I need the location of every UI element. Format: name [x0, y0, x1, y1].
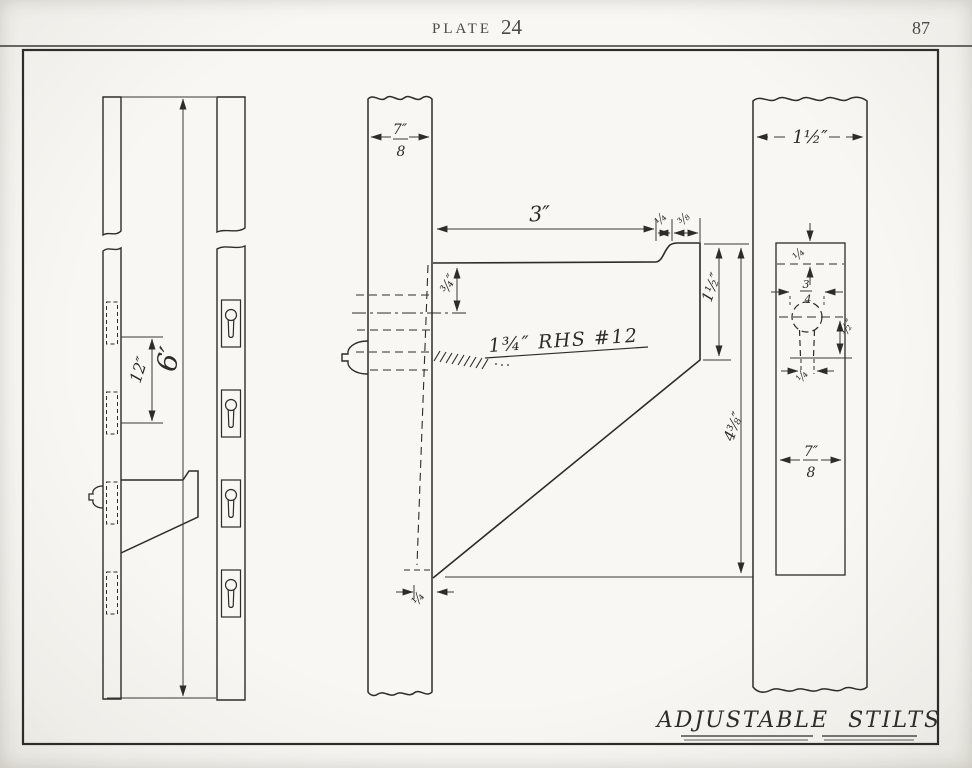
- round-head-screw: [342, 341, 368, 374]
- page-number: 87: [912, 18, 930, 38]
- title-block: ADJUSTABLE STILTS: [655, 708, 941, 740]
- plate-drawing: PLATE 24 87 12″ 6′: [0, 0, 972, 768]
- dim-label-bracket-height: 4⅜″: [720, 409, 748, 444]
- hatch-leader: [434, 351, 488, 369]
- drawing-frame: [23, 50, 938, 744]
- pole-side-lower: [103, 248, 121, 699]
- plate-number-label: 24: [501, 15, 523, 39]
- keyhole-slot-plate: [222, 570, 241, 617]
- dim-label-plate-width-den: 8: [807, 465, 816, 481]
- dim-label-lip-rise: ¼: [652, 210, 670, 228]
- hidden-slot-edge: [814, 330, 815, 357]
- step-bracket-profile: [433, 243, 700, 578]
- screw-head-small: [89, 486, 103, 508]
- pole-front-upper: [217, 97, 245, 232]
- bracket-side-detail: 7″ 8 3″ ¼ ⅜ ¾″: [342, 96, 753, 695]
- leader-dot: [495, 363, 497, 365]
- dim-label-hole-diameter-den: 4: [804, 293, 812, 306]
- hidden-slot-mark: [107, 572, 118, 614]
- overall-front-view: [217, 97, 245, 700]
- scanned-plate-page: PLATE 24 87 12″ 6′: [0, 0, 972, 768]
- hidden-slot-mark: [107, 302, 118, 344]
- dim-label-slot-spacing: 12″: [126, 354, 152, 385]
- keyhole-slot-plate: [222, 390, 241, 437]
- leader-dot: [501, 364, 503, 366]
- plate-word-label: PLATE: [432, 21, 492, 37]
- pole-side-upper: [103, 97, 121, 235]
- overall-side-view: 12″ 6′: [89, 97, 216, 699]
- keyhole-slot-plate: [222, 300, 241, 347]
- dim-label-slot-width: ¼: [793, 367, 811, 385]
- dim-label-hole-diameter-num: 3: [803, 278, 810, 291]
- dim-label-pole-length: 6′: [150, 343, 187, 374]
- hidden-slot-edge: [800, 330, 801, 357]
- keyhole-slot-plate: [222, 480, 241, 527]
- hidden-line-tongue: [417, 265, 428, 565]
- leader-dot: [507, 364, 509, 366]
- plate-title: ADJUSTABLE STILTS: [655, 708, 941, 733]
- pole-detail-front: [753, 97, 867, 692]
- pole-front-detail: 1½″ ¼ 3 4 ½″ ¼ 7″ 8: [753, 97, 867, 692]
- page-header: PLATE 24 87: [0, 15, 972, 46]
- step-bracket-side-small: [121, 471, 198, 553]
- hidden-slot-mark: [107, 392, 118, 434]
- dim-label-pole-width-num: 7″: [393, 122, 408, 138]
- dim-label-slot-top-offset: ¼: [790, 245, 808, 263]
- dim-label-pole-width-front: 1½″: [792, 127, 828, 148]
- hidden-slot-mark: [107, 482, 118, 524]
- dim-label-lip-width: ⅜: [675, 210, 693, 228]
- dim-label-step-depth: 3″: [528, 201, 551, 226]
- dim-label-plate-width-num: 7″: [804, 444, 819, 460]
- dim-label-lip-height: 1½″: [698, 270, 725, 304]
- dim-label-pole-width-den: 8: [397, 144, 406, 160]
